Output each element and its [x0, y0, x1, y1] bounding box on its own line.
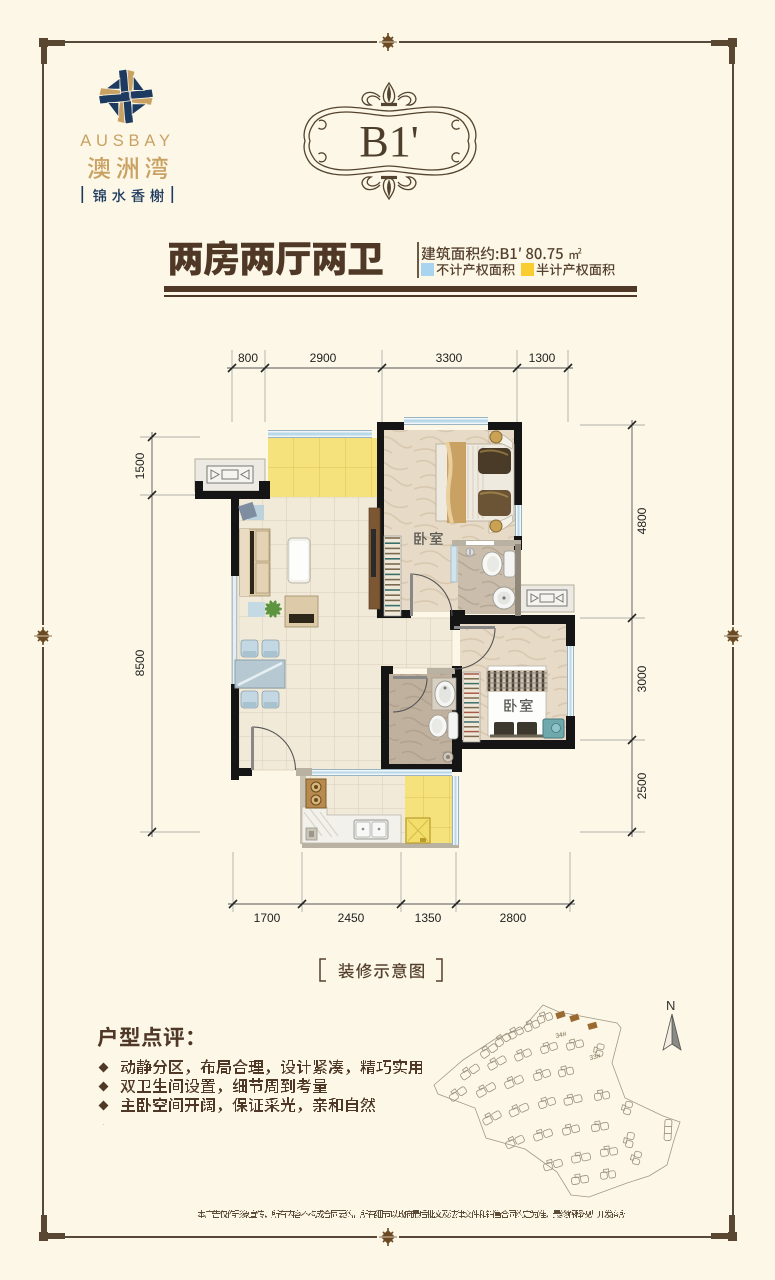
svg-text:3000: 3000 — [635, 665, 649, 692]
svg-text:1350: 1350 — [415, 911, 442, 925]
svg-text:2450: 2450 — [338, 911, 365, 925]
svg-text:N: N — [666, 998, 675, 1013]
svg-text:3300: 3300 — [436, 351, 463, 365]
svg-text:1700: 1700 — [254, 911, 281, 925]
svg-text:4800: 4800 — [635, 507, 649, 534]
svg-text:34#: 34# — [555, 1031, 567, 1040]
svg-text:33#: 33# — [589, 1053, 601, 1062]
svg-text:1500: 1500 — [133, 452, 147, 479]
svg-text:2800: 2800 — [500, 911, 527, 925]
svg-text:8500: 8500 — [133, 649, 147, 676]
svg-text:1300: 1300 — [529, 351, 556, 365]
svg-text:2900: 2900 — [310, 351, 337, 365]
svg-text:2500: 2500 — [635, 772, 649, 799]
svg-text:B1': B1' — [359, 117, 418, 166]
svg-text:800: 800 — [238, 351, 258, 365]
